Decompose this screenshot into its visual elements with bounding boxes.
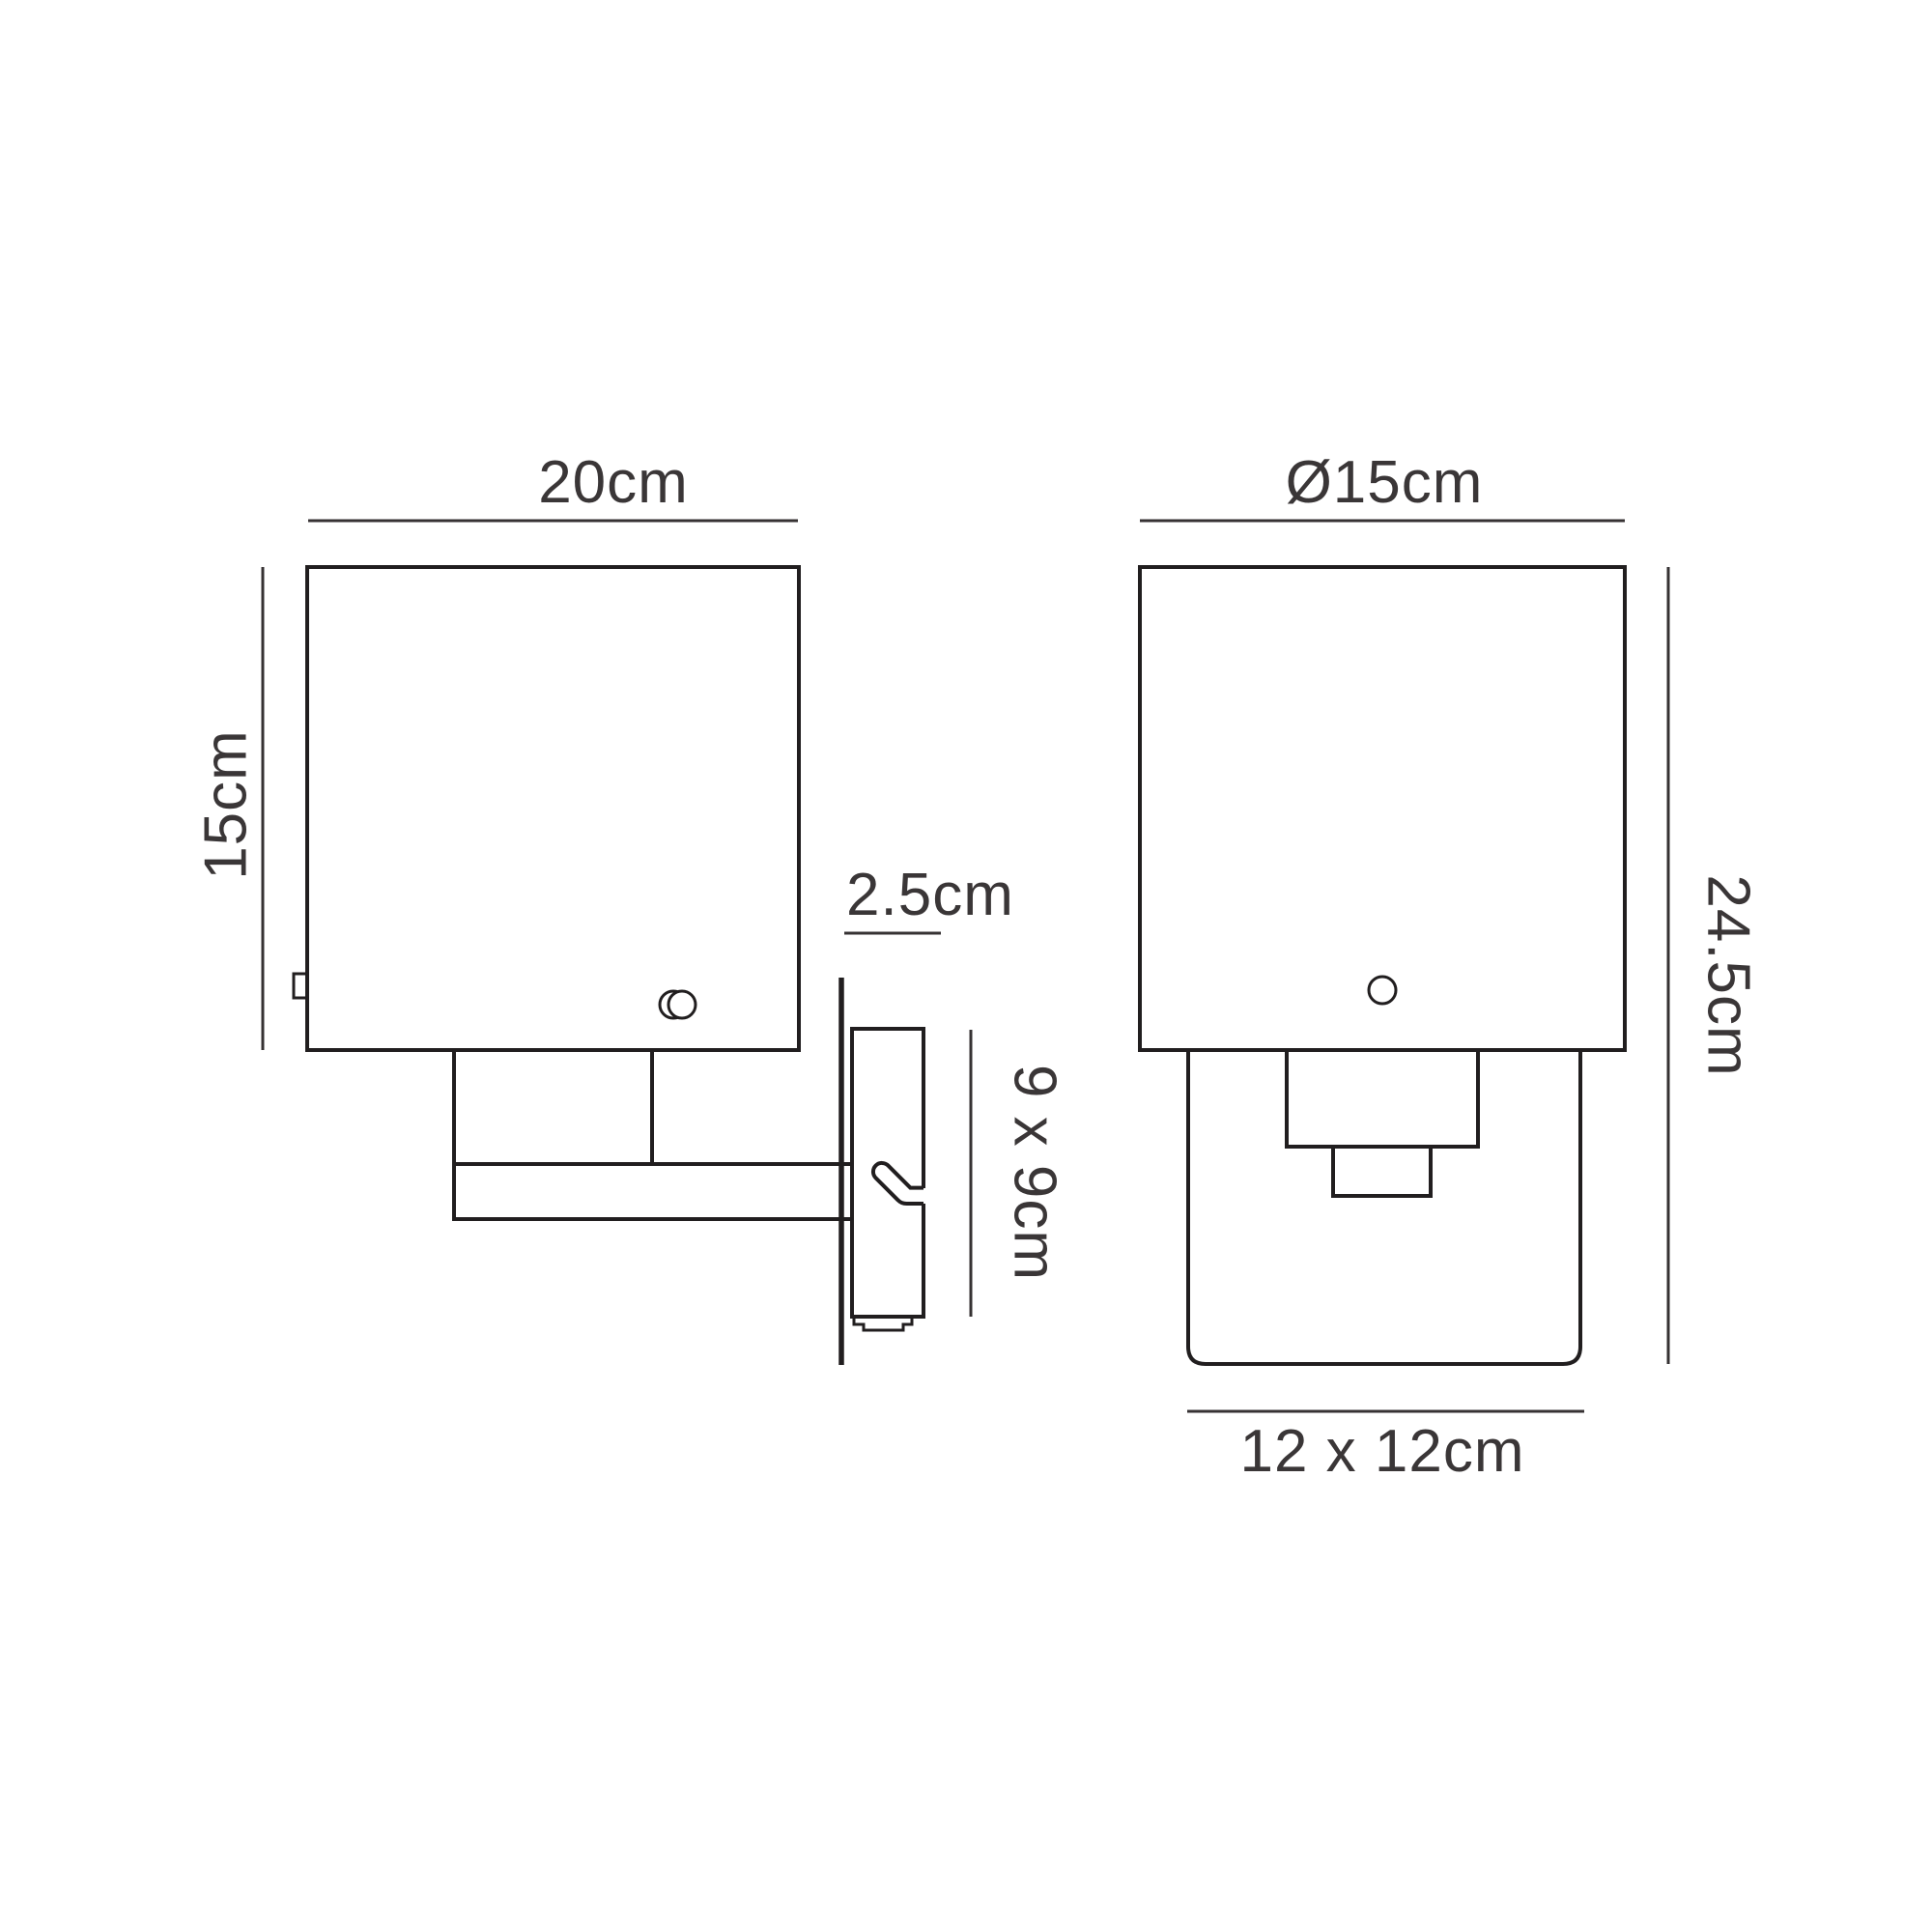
side-backplate-depth-dimension-label: 2.5cm: [846, 862, 1014, 928]
side-switch-knob-circle: [668, 991, 696, 1018]
front-total-height-dimension-label: 24.5cm: [1694, 874, 1761, 1076]
front-view: Ø15cm 24.5cm 12 x 12cm: [1140, 449, 1761, 1485]
front-bracket-upper: [1287, 1050, 1478, 1147]
side-shade-outline: [307, 567, 799, 1050]
dimension-diagram: 20cm 15cm 2.5cm 9 x 9cm Ø15cm 24.5cm 12 …: [0, 0, 1932, 1932]
front-screw-circle: [1369, 977, 1396, 1004]
side-backplate-size-dimension-label: 9 x 9cm: [1001, 1065, 1067, 1281]
side-view: 20cm 15cm 2.5cm 9 x 9cm: [193, 449, 1068, 1365]
side-bracket-arm: [454, 1164, 852, 1219]
front-glass-outline: [1188, 1050, 1580, 1364]
side-height-dimension-label: 15cm: [193, 729, 260, 880]
side-shade-tab: [294, 974, 307, 998]
front-lampholder: [1333, 1147, 1431, 1196]
front-diameter-dimension-label: Ø15cm: [1286, 449, 1484, 516]
side-backplate-hook: [873, 1163, 923, 1204]
side-backplate-bottom-connector: [854, 1317, 912, 1330]
side-width-dimension-label: 20cm: [538, 449, 689, 516]
front-glass-size-dimension-label: 12 x 12cm: [1239, 1418, 1524, 1485]
side-backplate-outline: [852, 1029, 923, 1317]
wall-light-dimension-drawing: 20cm 15cm 2.5cm 9 x 9cm Ø15cm 24.5cm 12 …: [0, 0, 1932, 1932]
